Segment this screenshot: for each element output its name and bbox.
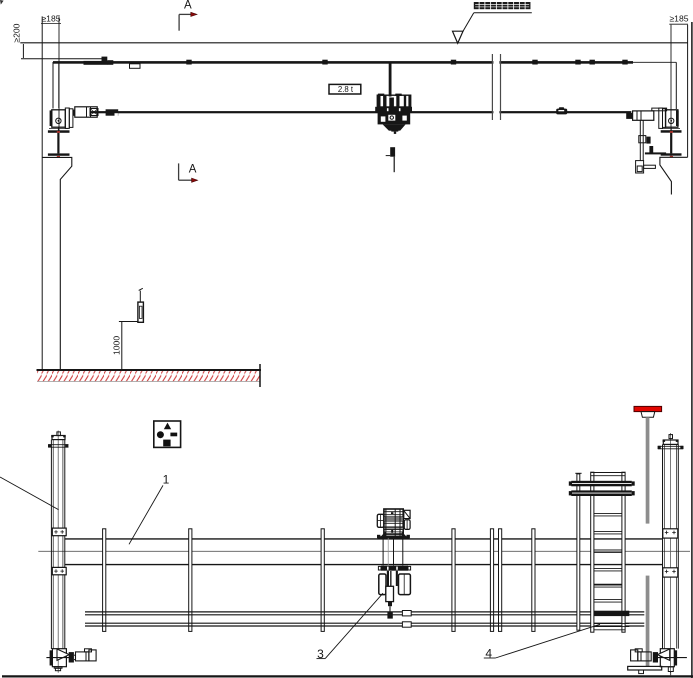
svg-text:A: A xyxy=(184,0,192,12)
svg-text:A: A xyxy=(189,164,197,176)
svg-text:≥185: ≥185 xyxy=(669,14,688,24)
svg-text:1000: 1000 xyxy=(111,336,121,355)
svg-text:≥185: ≥185 xyxy=(41,14,60,24)
svg-text:1: 1 xyxy=(163,473,170,487)
svg-text:≥200: ≥200 xyxy=(11,23,21,42)
svg-text:2.8 t: 2.8 t xyxy=(338,85,354,94)
